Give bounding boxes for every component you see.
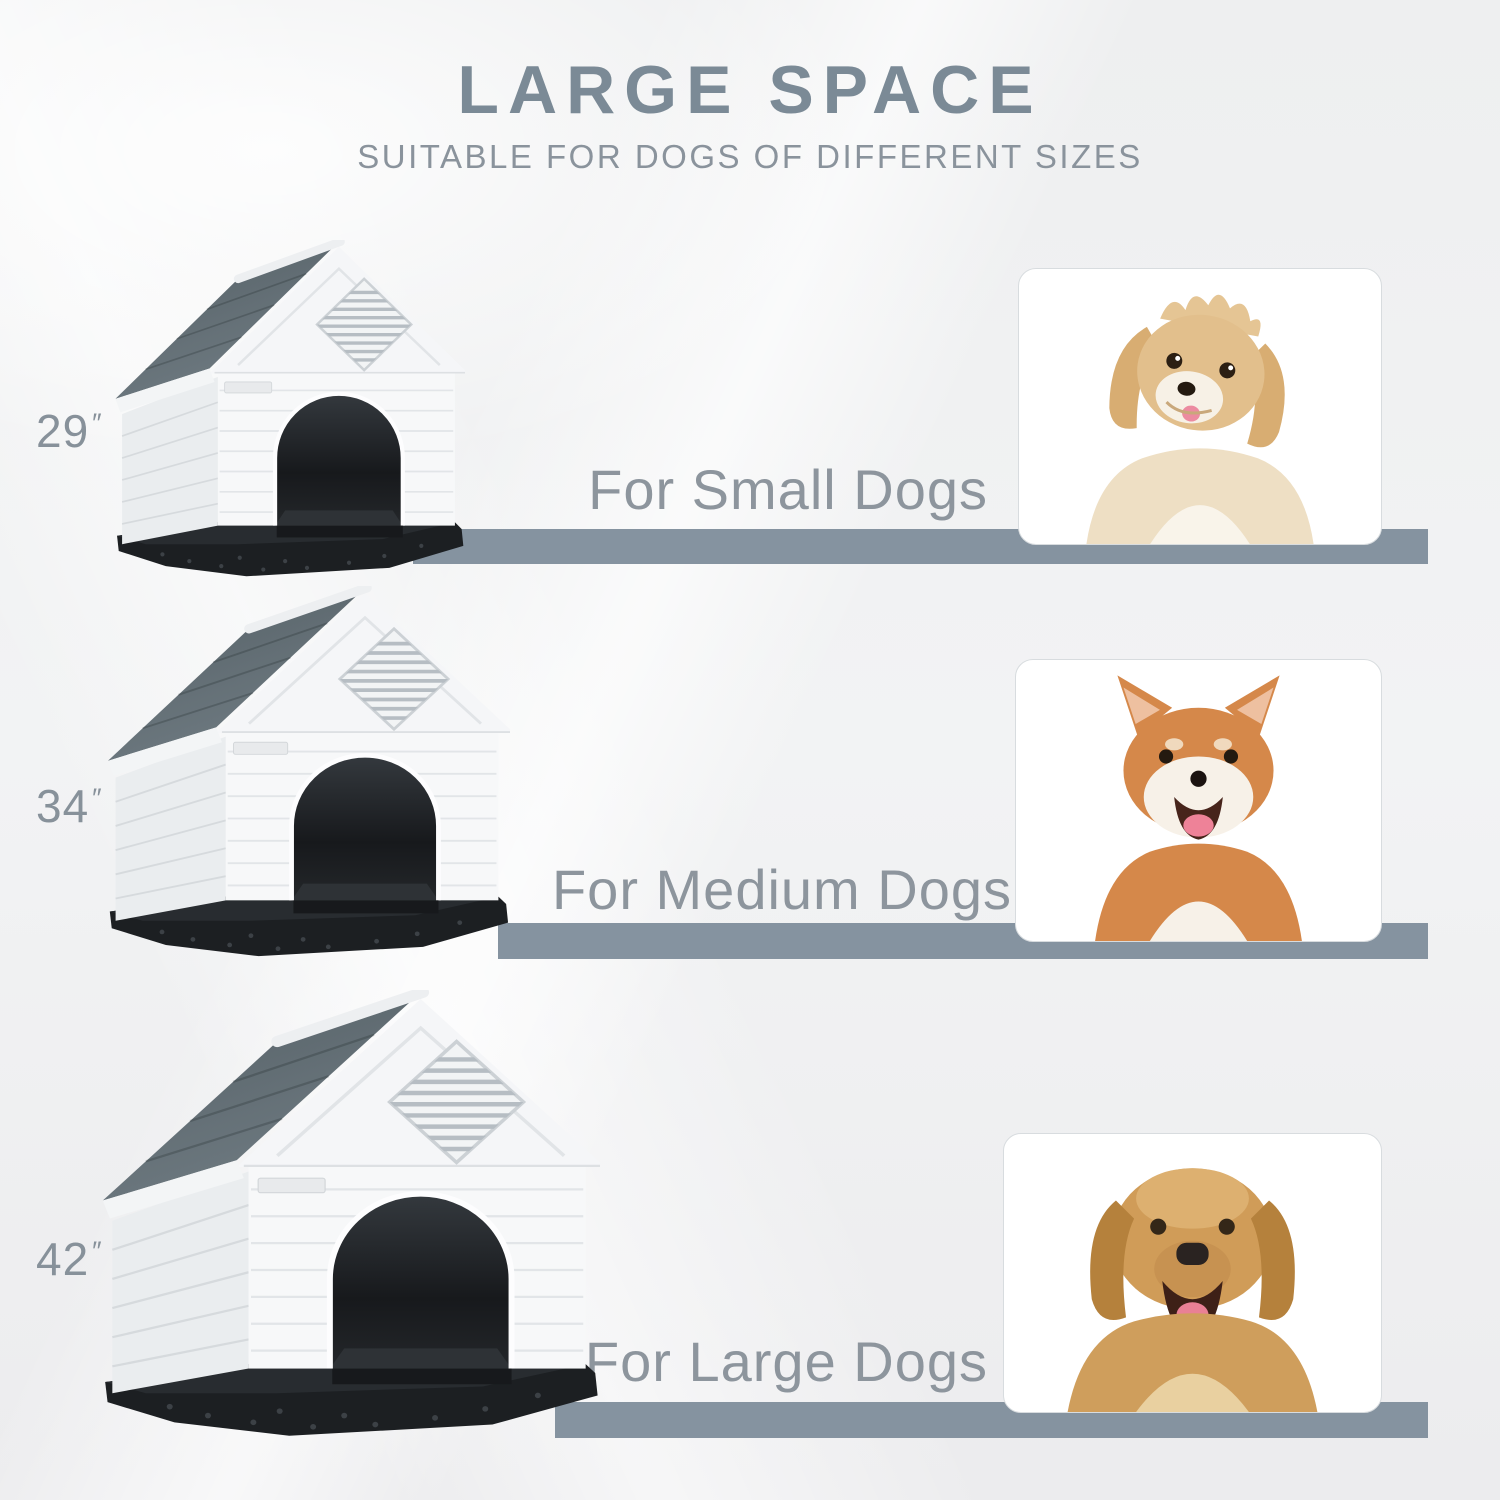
- audience-label-small: For Small Dogs: [588, 462, 988, 518]
- dog-house-29in-illustration: [112, 240, 465, 578]
- size-label-34in: 34″: [36, 783, 103, 829]
- inch-mark: ″: [92, 408, 102, 438]
- size-value: 34: [36, 780, 89, 832]
- small-fluffy-dog-photo: [1019, 269, 1381, 544]
- dog-photo-card-large: [1003, 1133, 1382, 1413]
- infographic-canvas: LARGE SPACE SUITABLE FOR DOGS OF DIFFERE…: [0, 0, 1500, 1500]
- dog-house-34in-illustration: [104, 586, 510, 958]
- size-label-29in: 29″: [36, 408, 103, 454]
- dog-house-42in-illustration: [98, 990, 600, 1438]
- size-label-42in: 42″: [36, 1236, 103, 1282]
- audience-label-medium: For Medium Dogs: [552, 862, 1012, 918]
- header: LARGE SPACE SUITABLE FOR DOGS OF DIFFERE…: [0, 56, 1500, 173]
- dog-photo-card-medium: [1015, 659, 1382, 942]
- shiba-inu-photo: [1016, 660, 1381, 941]
- golden-retriever-photo: [1004, 1134, 1381, 1412]
- page-subtitle: SUITABLE FOR DOGS OF DIFFERENT SIZES: [0, 140, 1500, 173]
- inch-mark: ″: [92, 783, 102, 813]
- audience-label-large: For Large Dogs: [585, 1334, 988, 1390]
- size-value: 42: [36, 1233, 89, 1285]
- size-value: 29: [36, 405, 89, 457]
- page-title: LARGE SPACE: [0, 56, 1500, 124]
- dog-photo-card-small: [1018, 268, 1382, 545]
